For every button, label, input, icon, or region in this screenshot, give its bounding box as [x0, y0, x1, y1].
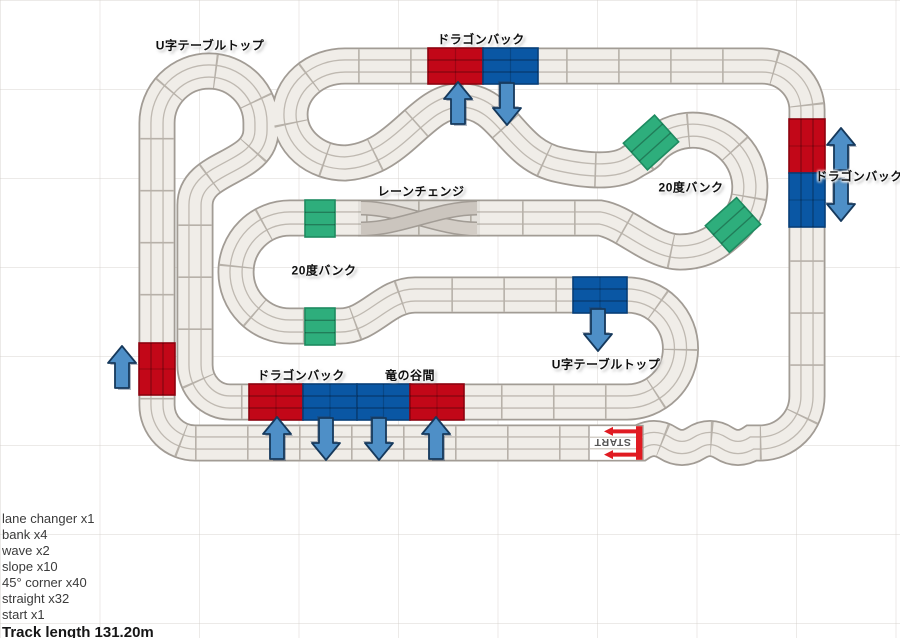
track-label: U字テーブルトップ: [552, 356, 660, 373]
track-label: 20度バンク: [292, 262, 357, 279]
track-label: ドラゴンバック: [815, 168, 900, 185]
track-label: 竜の谷間: [385, 367, 435, 384]
lane-changer-crossing: [358, 200, 480, 237]
parts-list-item: start x1: [2, 607, 154, 623]
start-text: START: [594, 436, 631, 448]
track-section-slope-blue: [483, 48, 538, 84]
parts-list-item: straight x32: [2, 591, 154, 607]
parts-list: lane changer x1 bank x4 wave x2 slope x1…: [2, 511, 154, 638]
track-section-slope-red: [789, 119, 825, 173]
track-section-slope-red: [249, 384, 303, 420]
parts-list-item: lane changer x1: [2, 511, 154, 527]
track-label: レーンチェンジ: [378, 183, 465, 200]
up-arrow: [827, 128, 857, 172]
track-section-bank-green: [305, 200, 335, 237]
parts-list-item: bank x4: [2, 527, 154, 543]
track-section-bank-green: [305, 308, 335, 345]
track-designer-canvas[interactable]: START U字テーブルトップドラゴンバックドラゴンバック20度バンクレーンチェ…: [0, 0, 900, 638]
track-section-slope-blue: [303, 384, 357, 420]
track-section-slope-blue: [357, 384, 410, 420]
track-label: ドラゴンバック: [437, 31, 525, 48]
start-section: START: [589, 426, 643, 461]
parts-list-item: 45° corner x40: [2, 575, 154, 591]
parts-list-item: slope x10: [2, 559, 154, 575]
track-length-total: Track length 131.20m: [2, 625, 154, 638]
start-layer: START: [589, 426, 643, 461]
track-section-slope-red: [139, 343, 175, 395]
track-section-slope-red: [410, 384, 464, 420]
up-arrow: [108, 346, 138, 390]
track-label: ドラゴンバック: [257, 367, 345, 384]
track-section-slope-red: [428, 48, 483, 84]
parts-list-item: wave x2: [2, 543, 154, 559]
track-label: U字テーブルトップ: [156, 37, 264, 54]
track-label: 20度バンク: [659, 179, 724, 196]
